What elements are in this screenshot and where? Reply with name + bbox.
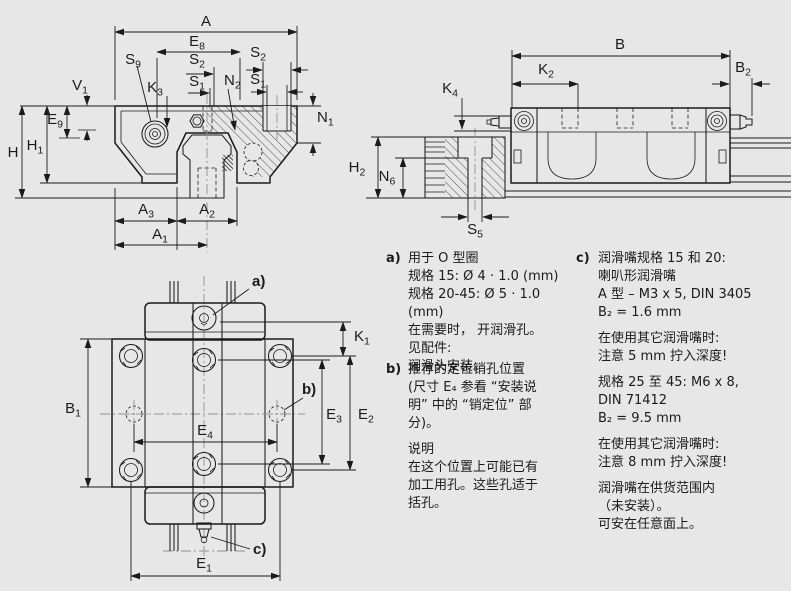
- dim-label-s1-right: S1: [250, 71, 266, 91]
- mounting-hole: [120, 459, 143, 482]
- lube-port: [708, 112, 727, 131]
- catalog-drawing-page: A E8 S2 S1 N2 S2 S1 N1 S9 K3 V1 E9 H H1 …: [0, 0, 791, 591]
- callout-b: b): [302, 381, 316, 398]
- ball-track: [244, 161, 259, 176]
- dim-label-v1: V1: [72, 77, 88, 97]
- note-b: b) 推荐的定位销孔位置 (尺寸 E₄ 参看 “安装说 明” 中的 “销定位” …: [386, 361, 576, 513]
- carriage-top: [112, 339, 293, 487]
- dim-label-s2-right: S2: [250, 44, 266, 64]
- callout-a: a): [252, 273, 265, 290]
- note-b-body: 推荐的定位销孔位置 (尺寸 E₄ 参看 “安装说 明” 中的 “销定位” 部 分…: [408, 361, 538, 513]
- dim-label-k4: K4: [442, 80, 458, 100]
- note-c-marker: c): [576, 250, 598, 534]
- dowel-hole: [263, 400, 291, 428]
- dim-label-s1-center: S1: [189, 73, 205, 93]
- dim-label-n1: N1: [317, 109, 334, 129]
- lube-port: [515, 112, 534, 131]
- dim-label-e2: E2: [358, 406, 374, 426]
- grease-nipple-left: [487, 116, 511, 128]
- dim-label-k3: K3: [147, 79, 163, 99]
- dim-label-h: H: [8, 144, 19, 161]
- note-b-paragraph-2: 说明 在这个位置上可能已有 加工用孔。这些孔适于 括孔。: [408, 441, 538, 513]
- note-c-paragraph-1: 润滑嘴规格 15 和 20: 喇叭形润滑嘴 A 型 – M3 x 5, DIN …: [598, 250, 752, 322]
- callout-c: c): [253, 541, 266, 558]
- grease-nipple-right: [730, 115, 752, 129]
- dim-label-e4: E4: [197, 422, 213, 442]
- end-cap-top: [145, 303, 265, 340]
- side-view: B K2 B2 K4 H2 N6 S5: [349, 36, 791, 241]
- note-a-marker: a): [386, 250, 408, 376]
- note-b-paragraph-1: 推荐的定位销孔位置 (尺寸 E₄ 参看 “安装说 明” 中的 “销定位” 部 分…: [408, 361, 538, 433]
- dim-label-h1: H1: [27, 137, 44, 157]
- carriage-side: [511, 108, 730, 183]
- dim-label-b: B: [615, 36, 625, 53]
- note-c-paragraph-4: 在使用其它润滑嘴时: 注意 8 mm 拧入深度!: [598, 436, 752, 472]
- lube-port: [142, 121, 168, 147]
- note-b-marker: b): [386, 361, 408, 513]
- note-a-body: 用于 O 型圈 规格 15: Ø 4 · 1.0 (mm) 规格 20-45: …: [408, 250, 576, 376]
- cross-section-view: A E8 S2 S1 N2 S2 S1 N1 S9 K3 V1 E9 H H1 …: [8, 13, 334, 252]
- dim-label-h2: H2: [349, 159, 366, 179]
- dim-label-e1: E1: [196, 555, 212, 575]
- ball-contact: [222, 155, 233, 171]
- dim-label-k2: K2: [538, 61, 554, 81]
- dim-label-n2: N2: [224, 72, 241, 92]
- dim-label-a3: A3: [138, 201, 154, 221]
- dim-label-e9: E9: [47, 111, 63, 131]
- note-c-body: 润滑嘴规格 15 和 20: 喇叭形润滑嘴 A 型 – M3 x 5, DIN …: [598, 250, 752, 534]
- note-c-paragraph-3: 规格 25 至 45: M6 x 8, DIN 71412 B₂ = 9.5 m…: [598, 374, 752, 428]
- note-c-paragraph-2: 在使用其它润滑嘴时: 注意 5 mm 拧入深度!: [598, 330, 752, 366]
- note-a: a) 用于 O 型圈 规格 15: Ø 4 · 1.0 (mm) 规格 20-4…: [386, 250, 576, 376]
- dim-label-b2: B2: [735, 59, 751, 79]
- rail-top-end: [170, 281, 235, 303]
- dim-label-s9: S9: [125, 51, 141, 71]
- mounting-hole: [120, 345, 143, 368]
- dim-label-b1: B1: [65, 400, 81, 420]
- dim-label-k1: K1: [354, 328, 370, 348]
- dowel-hole: [120, 400, 148, 428]
- dim-label-s5: S5: [467, 221, 483, 241]
- dim-label-a1: A1: [152, 226, 168, 246]
- ball-track: [244, 143, 262, 161]
- dim-label-e3: E3: [326, 406, 342, 426]
- dim-label-s2-center: S2: [189, 51, 205, 71]
- dim-label-n6: N6: [379, 168, 396, 188]
- dim-label-a: A: [201, 13, 211, 30]
- note-c: c) 润滑嘴规格 15 和 20: 喇叭形润滑嘴 A 型 – M3 x 5, D…: [576, 250, 788, 534]
- mounting-hole: [269, 459, 292, 482]
- note-c-paragraph-5: 润滑嘴在供货范围内 （未安装）。 可安在任意面上。: [598, 480, 752, 534]
- top-view-dimensions: [80, 289, 356, 581]
- dim-label-a2: A2: [199, 201, 215, 221]
- dim-label-e8: E8: [189, 33, 205, 53]
- top-view: B1 K1 E3 E2 E4 E1 a) b) c): [65, 273, 374, 581]
- side-view-dimensions: [366, 50, 770, 222]
- note-a-text: 用于 O 型圈 规格 15: Ø 4 · 1.0 (mm) 规格 20-45: …: [408, 250, 576, 376]
- mounting-hole: [269, 345, 292, 368]
